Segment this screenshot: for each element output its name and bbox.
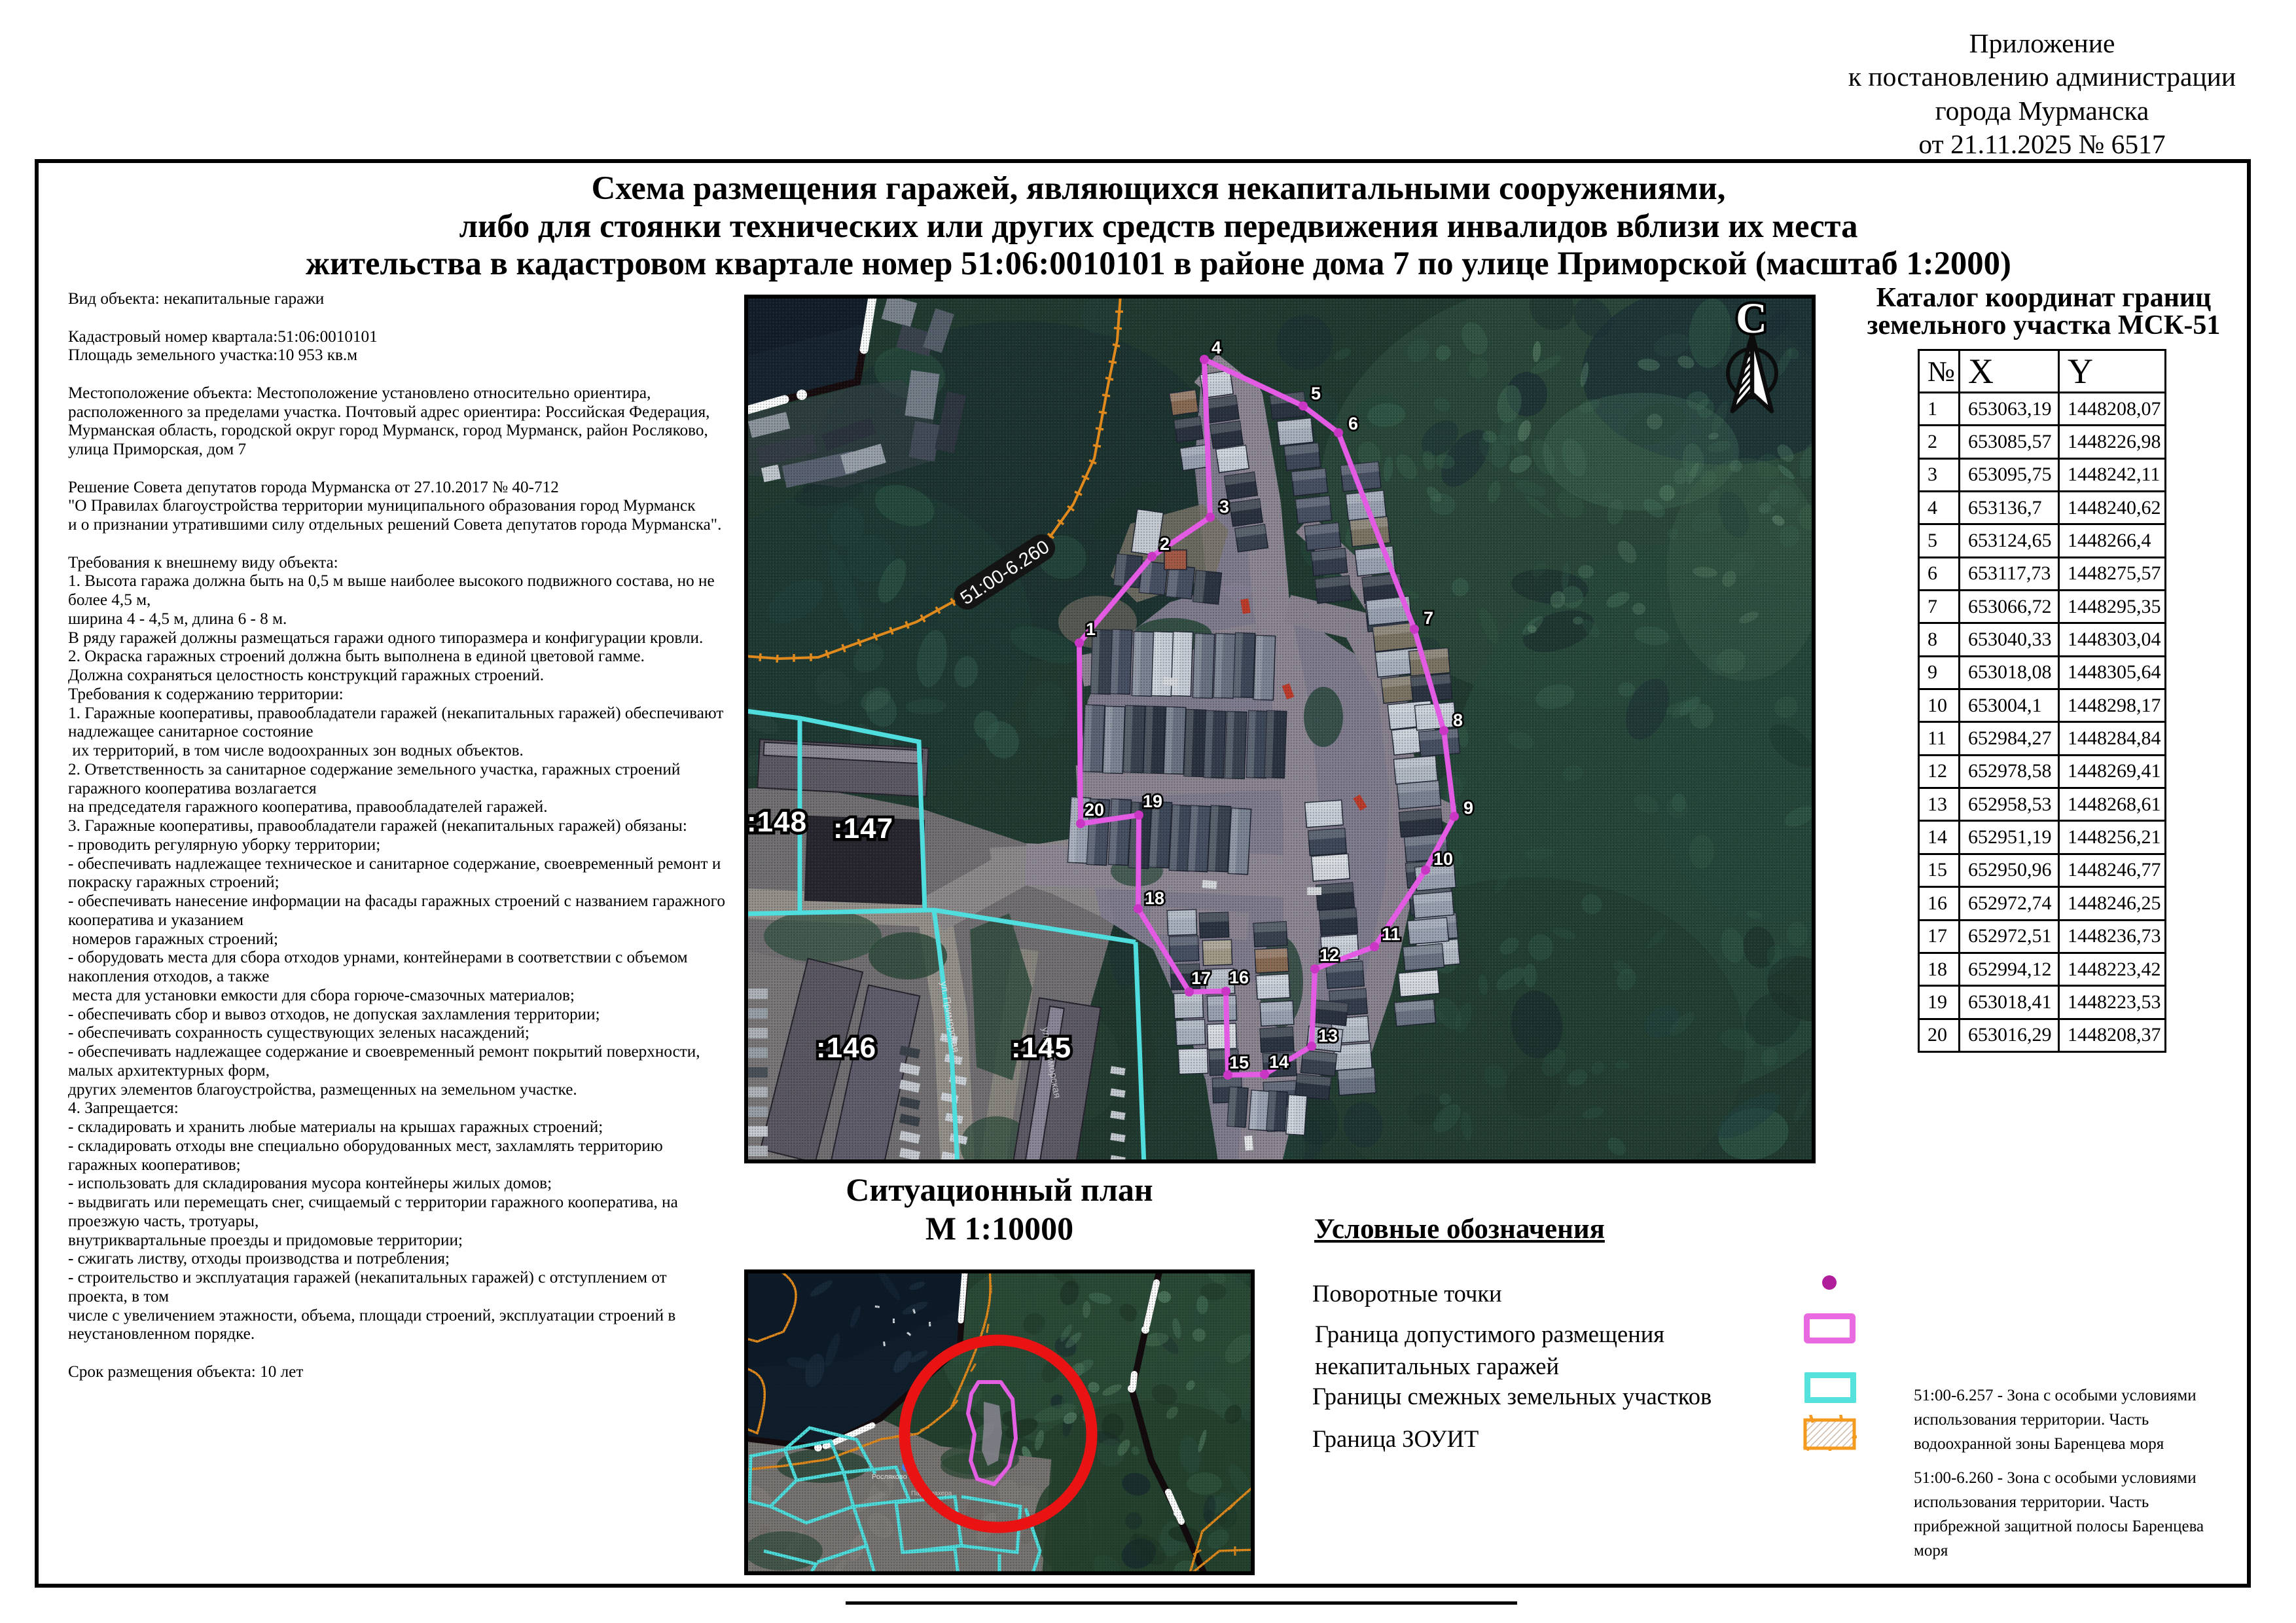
svg-text:5: 5 (1311, 384, 1321, 403)
svg-text:2: 2 (1160, 534, 1170, 554)
svg-text::148: :148 (747, 806, 807, 838)
svg-text::147: :147 (833, 812, 893, 845)
svg-text:20: 20 (1085, 800, 1104, 820)
svg-text:10: 10 (1433, 849, 1453, 869)
svg-text:6: 6 (1348, 414, 1358, 433)
svg-text:14: 14 (1269, 1052, 1289, 1072)
svg-text:7: 7 (1424, 608, 1433, 628)
svg-text:9: 9 (1463, 798, 1473, 818)
svg-text:11: 11 (1382, 924, 1401, 944)
svg-text:16: 16 (1229, 968, 1249, 987)
svg-text:1: 1 (1086, 619, 1096, 639)
svg-text:18: 18 (1145, 888, 1164, 908)
svg-text::146: :146 (816, 1032, 876, 1064)
svg-text:3: 3 (1219, 497, 1229, 517)
svg-text:13: 13 (1318, 1026, 1338, 1046)
svg-text:12: 12 (1319, 945, 1339, 965)
svg-text:8: 8 (1453, 710, 1463, 730)
svg-text:15: 15 (1229, 1053, 1249, 1072)
svg-text:19: 19 (1143, 792, 1162, 811)
svg-text:Росляково: Росляково (872, 1473, 907, 1481)
svg-text:4: 4 (1211, 338, 1221, 357)
svg-text:С: С (1736, 295, 1767, 342)
svg-text:17: 17 (1191, 968, 1211, 988)
